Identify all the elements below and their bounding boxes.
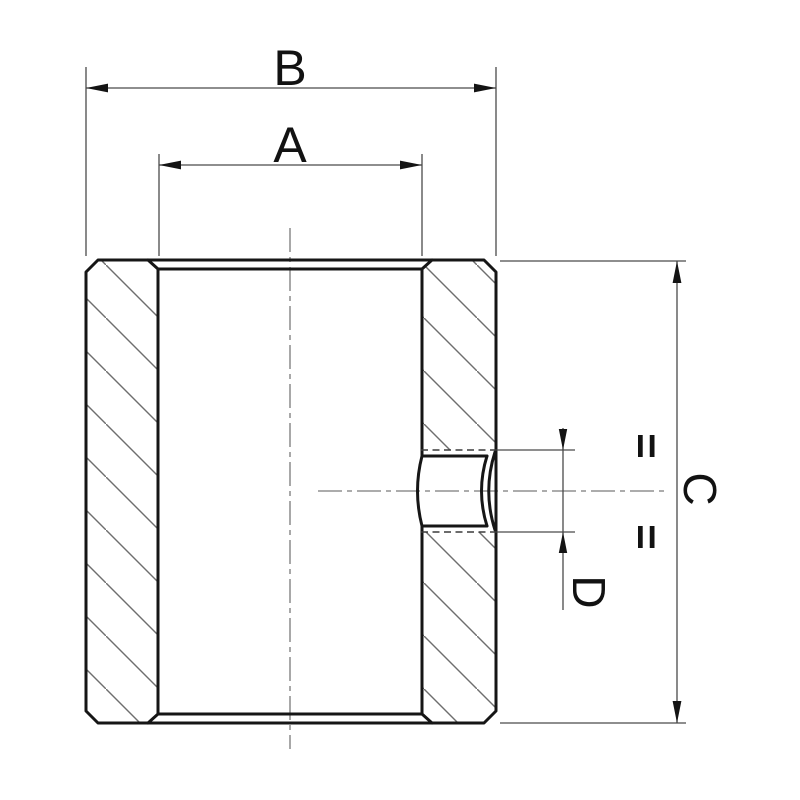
dimension-d: D xyxy=(497,428,615,610)
dimension-c: C xyxy=(500,261,726,723)
dim-d-arrow-bottom xyxy=(559,532,567,553)
dim-b-arrow-left xyxy=(86,84,108,93)
dim-d-arrow-top xyxy=(559,429,567,450)
section-view-drawing: B A C D xyxy=(0,0,800,800)
dim-a-arrow-left xyxy=(159,161,181,170)
dim-c-arrow-top xyxy=(673,261,682,283)
equals-mark-bottom: = xyxy=(622,524,671,550)
left-wall-hatch xyxy=(86,260,158,723)
dim-b-arrow-right xyxy=(474,84,496,93)
dimension-a-label: A xyxy=(273,117,307,173)
equals-mark-top: = xyxy=(622,433,671,459)
dim-c-arrow-bottom xyxy=(673,701,682,723)
dimension-b-label: B xyxy=(273,40,306,96)
dim-a-arrow-right xyxy=(400,161,422,170)
right-wall-hatch-lower xyxy=(422,532,496,723)
dimension-d-label: D xyxy=(563,575,615,608)
technical-drawing-page: B A C D xyxy=(0,0,800,800)
section-hatching xyxy=(86,260,496,723)
dimension-c-label: C xyxy=(674,472,726,505)
right-wall-hatch-upper xyxy=(422,260,496,450)
